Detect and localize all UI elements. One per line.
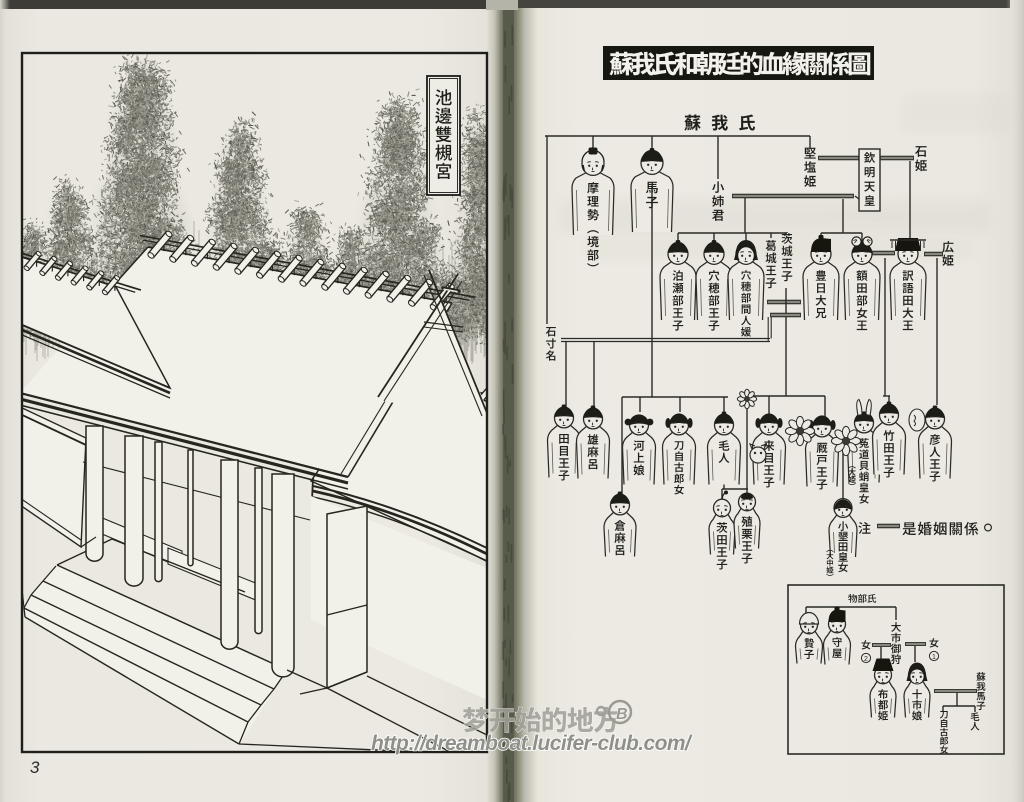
svg-text:3: 3 xyxy=(30,758,40,777)
svg-text:http://dreamboat.lucifer-club.: http://dreamboat.lucifer-club.com/ xyxy=(371,732,693,755)
svg-text:1: 1 xyxy=(932,654,936,661)
svg-text:2: 2 xyxy=(864,656,868,663)
svg-text:B: B xyxy=(616,706,628,723)
